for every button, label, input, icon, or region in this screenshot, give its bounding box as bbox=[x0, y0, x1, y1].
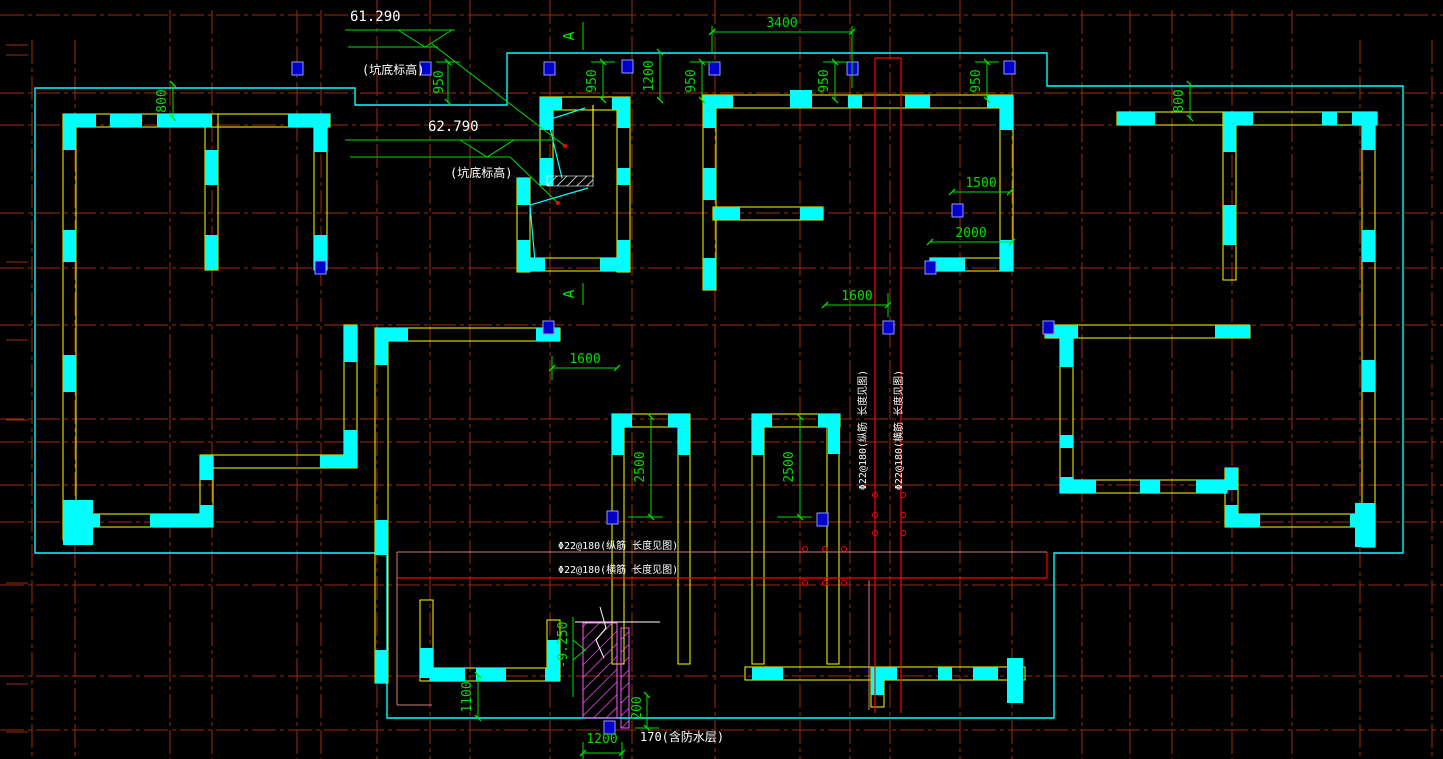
dim-800-left: 800 bbox=[155, 89, 170, 112]
dim-950-2: 950 bbox=[585, 69, 600, 92]
waterproof-note: 170(含防水层) bbox=[640, 729, 724, 744]
dim-200: 200 bbox=[630, 696, 645, 719]
dim-800-right: 800 bbox=[1172, 89, 1187, 112]
dim-1200-bottom: 1200 bbox=[586, 732, 617, 747]
elevation-neg: -9.250 bbox=[556, 622, 571, 669]
dim-2500-right: 2500 bbox=[782, 451, 797, 482]
dim-3400: 3400 bbox=[766, 16, 797, 31]
floor-plan-svg: 61.290 (坑底标高) 62.790 (坑底标高) 3400 950 950… bbox=[0, 0, 1443, 759]
dim-1200-top: 1200 bbox=[642, 60, 657, 91]
pit-elevation-label-2: (坑底标高) bbox=[450, 165, 512, 180]
rebar-note-v2: Φ22@180(横筋 长度见图) bbox=[892, 370, 905, 490]
dim-2500-left: 2500 bbox=[633, 451, 648, 482]
section-marker-a-bottom: A bbox=[560, 289, 578, 298]
axis-ticks-left bbox=[6, 45, 28, 732]
elevation-value-2: 62.790 bbox=[428, 119, 479, 135]
dim-950-4: 950 bbox=[817, 69, 832, 92]
pit-hatch bbox=[547, 176, 593, 186]
dim-950-1: 950 bbox=[432, 70, 447, 93]
elevation-value-1: 61.290 bbox=[350, 9, 401, 25]
pit-elevation-label-1: (坑底标高) bbox=[362, 62, 424, 77]
dim-1600-left: 1600 bbox=[569, 352, 600, 367]
dim-2000: 2000 bbox=[955, 226, 986, 241]
rebar-note-v1: Φ22@180(纵筋 长度见图) bbox=[856, 370, 869, 490]
raft-outline bbox=[35, 53, 1403, 718]
dim-950-3: 950 bbox=[684, 69, 699, 92]
dim-1500: 1500 bbox=[965, 176, 996, 191]
section-marker-a-top: A bbox=[560, 31, 578, 40]
rebar-note-h2: Φ22@180(横筋 长度见图) bbox=[558, 563, 678, 576]
rebar-note-h1: Φ22@180(纵筋 长度见图) bbox=[558, 539, 678, 552]
dim-1600-right: 1600 bbox=[841, 289, 872, 304]
rebar-band-layer bbox=[397, 58, 1047, 713]
cad-canvas[interactable]: 61.290 (坑底标高) 62.790 (坑底标高) 3400 950 950… bbox=[0, 0, 1443, 759]
dim-1100: 1100 bbox=[460, 681, 475, 712]
wall-layer bbox=[63, 90, 1377, 707]
blue-marker-layer bbox=[292, 60, 1054, 734]
dim-950-5: 950 bbox=[969, 69, 984, 92]
